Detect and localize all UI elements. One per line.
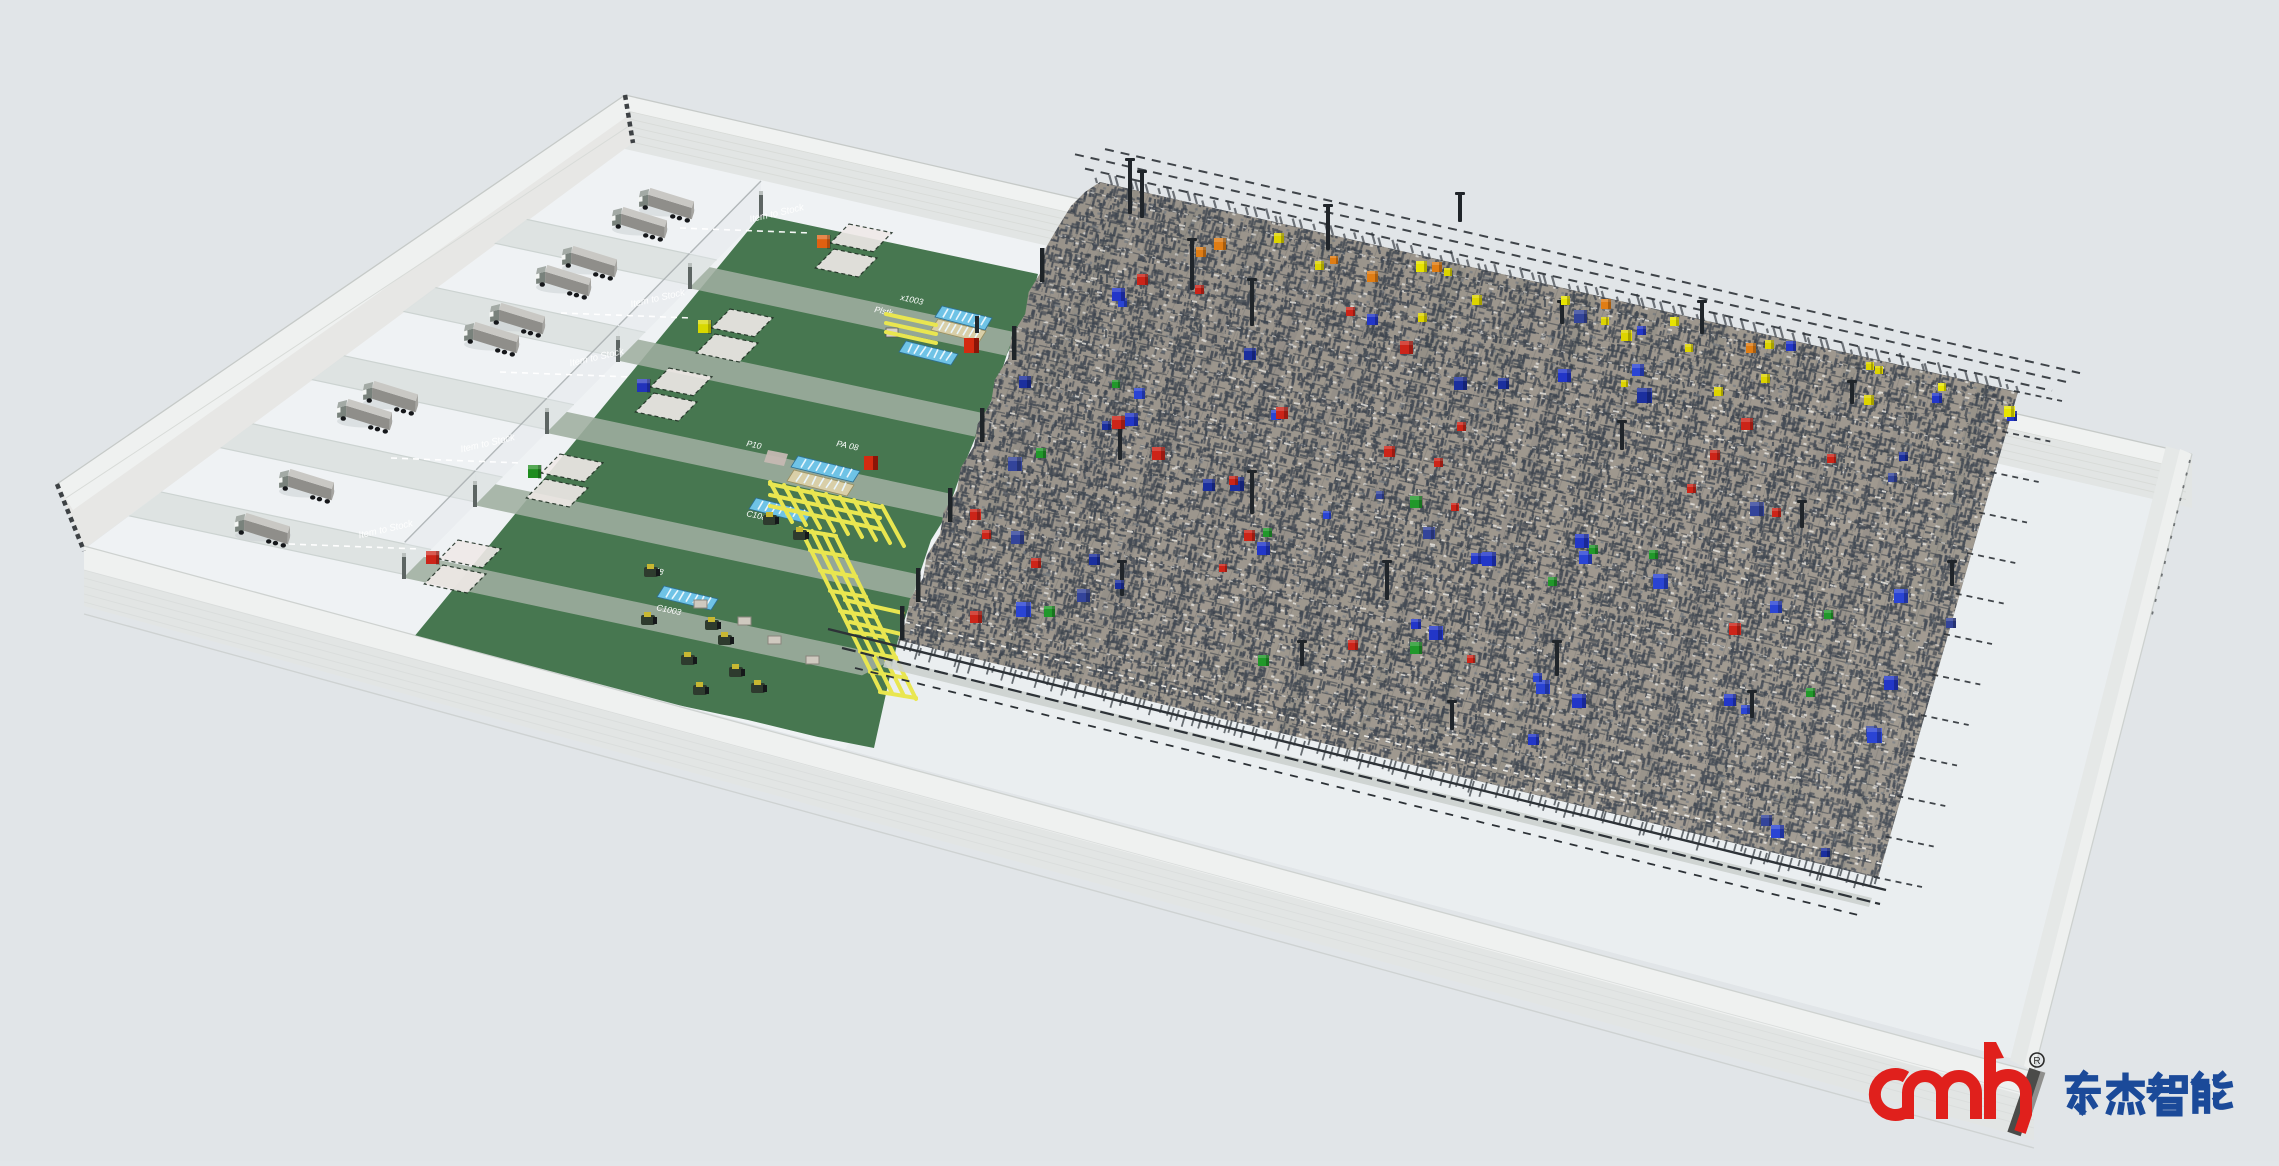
- svg-text:R: R: [2033, 1056, 2040, 1067]
